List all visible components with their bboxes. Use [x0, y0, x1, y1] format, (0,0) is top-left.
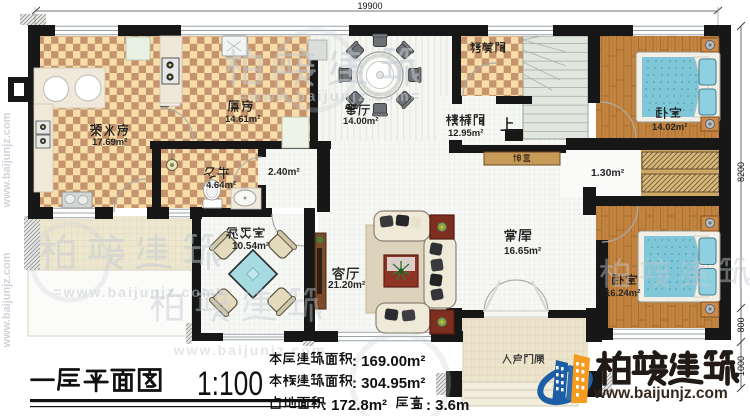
svg-text:: 169.00m²: : 169.00m²: [352, 353, 425, 370]
svg-text:1:100: 1:100: [197, 365, 263, 403]
svg-text:10.54m²: 10.54m²: [232, 241, 270, 252]
svg-text:: 304.95m²: : 304.95m²: [352, 375, 425, 392]
svg-text:: 3.6m: : 3.6m: [426, 397, 469, 414]
svg-text:www.baijunjz.com: www.baijunjz.com: [593, 385, 728, 402]
svg-text:=www.baijunjz.com=: =www.baijunjz.com=: [239, 88, 422, 105]
svg-text:www.baijunjz.com: www.baijunjz.com: [1, 252, 13, 348]
svg-text:: 172.8m²: : 172.8m²: [322, 397, 387, 414]
svg-text:800: 800: [736, 317, 746, 332]
svg-text:17.69m²: 17.69m²: [92, 137, 127, 148]
svg-text:21.20m²: 21.20m²: [328, 280, 366, 291]
svg-text:8200: 8200: [736, 162, 746, 182]
svg-text:4.64m²: 4.64m²: [206, 180, 236, 191]
svg-text:2.40m²: 2.40m²: [268, 167, 300, 178]
svg-text:16.65m²: 16.65m²: [504, 246, 542, 257]
svg-text:16.24m²: 16.24m²: [605, 288, 640, 299]
svg-text:www.baijunjz.com: www.baijunjz.com: [1, 112, 13, 208]
svg-text:12.95m²: 12.95m²: [448, 128, 483, 139]
svg-text:14.00m²: 14.00m²: [343, 116, 378, 127]
svg-text:1.30m²: 1.30m²: [591, 167, 625, 179]
svg-text:14.02m²: 14.02m²: [652, 122, 687, 133]
svg-text:14.61m²: 14.61m²: [225, 114, 260, 125]
svg-text:19900: 19900: [357, 1, 382, 11]
